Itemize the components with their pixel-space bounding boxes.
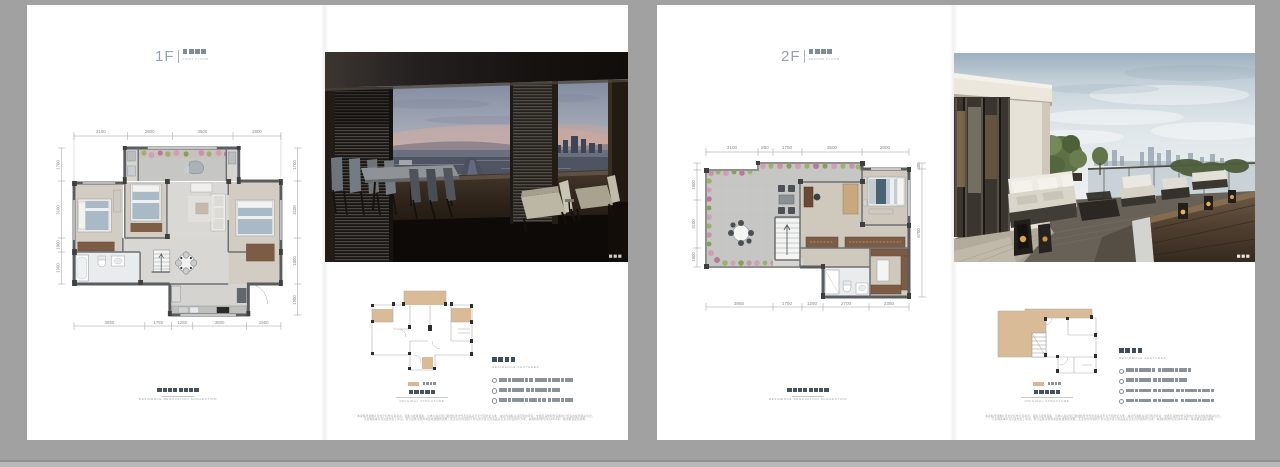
- svg-text:1800: 1800: [56, 240, 61, 250]
- svg-text:1750: 1750: [153, 320, 163, 325]
- svg-text:850: 850: [761, 145, 769, 150]
- svg-text:2800: 2800: [880, 145, 891, 150]
- svg-text:3950: 3950: [105, 320, 115, 325]
- svg-text:3100: 3100: [691, 219, 696, 229]
- svg-text:400: 400: [916, 162, 921, 170]
- svg-text:6700: 6700: [916, 228, 921, 238]
- svg-text:3500: 3500: [197, 129, 207, 134]
- svg-text:1900: 1900: [56, 263, 61, 273]
- svg-text:1900: 1900: [292, 295, 297, 305]
- svg-text:1800: 1800: [691, 180, 696, 190]
- svg-text:2350: 2350: [884, 301, 895, 306]
- svg-text:1250: 1250: [807, 301, 818, 306]
- svg-text:2600: 2600: [145, 129, 155, 134]
- svg-text:3100: 3100: [292, 205, 297, 215]
- svg-text:2700: 2700: [841, 301, 852, 306]
- svg-text:3500: 3500: [827, 145, 838, 150]
- svg-text:3500: 3500: [215, 320, 225, 325]
- svg-text:1550: 1550: [259, 320, 269, 325]
- svg-text:1750: 1750: [782, 145, 793, 150]
- svg-text:1800: 1800: [691, 252, 696, 262]
- svg-text:1700: 1700: [292, 160, 297, 170]
- svg-text:3950: 3950: [734, 301, 745, 306]
- svg-text:1700: 1700: [56, 160, 61, 170]
- svg-text:3100: 3100: [727, 145, 738, 150]
- svg-text:2800: 2800: [252, 129, 262, 134]
- svg-text:1800: 1800: [292, 256, 297, 266]
- svg-text:3100: 3100: [56, 205, 61, 215]
- svg-text:1750: 1750: [782, 301, 793, 306]
- svg-text:3100: 3100: [96, 129, 106, 134]
- svg-text:1250: 1250: [177, 320, 187, 325]
